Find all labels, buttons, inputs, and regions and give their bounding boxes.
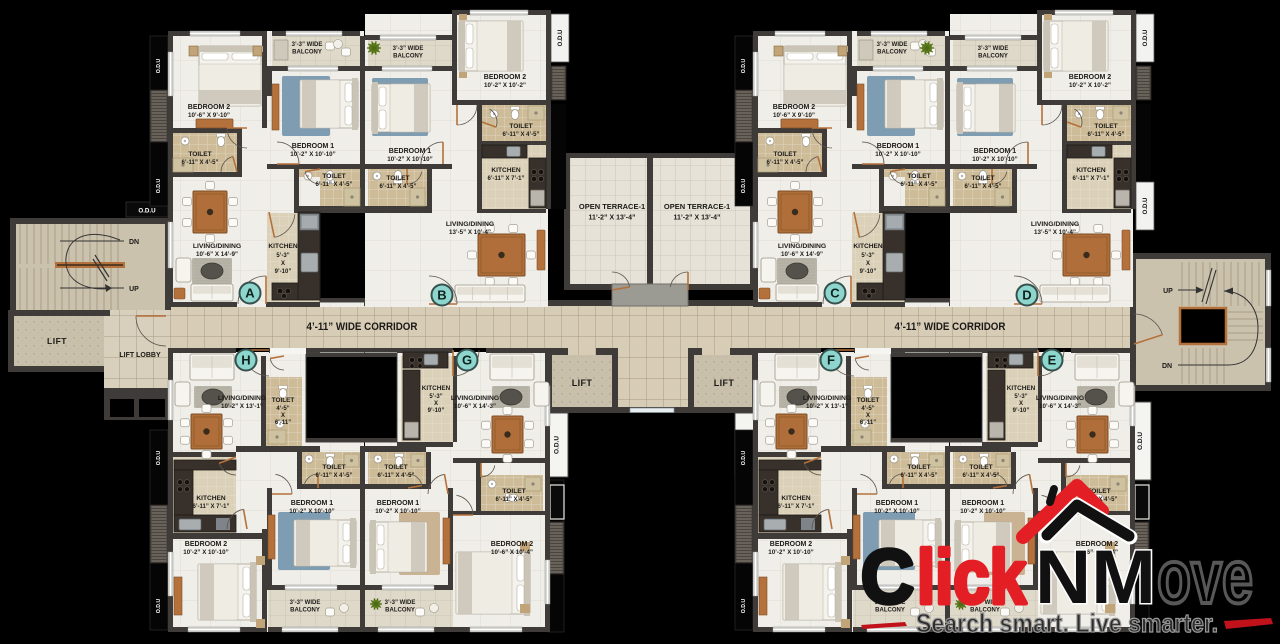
svg-text:TOILET: TOILET xyxy=(272,397,295,404)
svg-text:10’-6” X 14’-9”: 10’-6” X 14’-9” xyxy=(196,251,238,258)
svg-text:TOILET: TOILET xyxy=(322,464,345,471)
svg-text:TOILET: TOILET xyxy=(386,175,409,182)
svg-text:TOILET: TOILET xyxy=(509,123,532,130)
svg-text:9’-10”: 9’-10” xyxy=(275,269,292,275)
svg-text:LIFT LOBBY: LIFT LOBBY xyxy=(119,352,161,359)
svg-text:10’-2” X 10’-10”: 10’-2” X 10’-10” xyxy=(183,549,228,556)
svg-text:TOILET: TOILET xyxy=(188,151,211,158)
svg-text:UP: UP xyxy=(1163,288,1173,295)
svg-text:KITCHEN: KITCHEN xyxy=(853,243,883,250)
svg-text:X: X xyxy=(866,413,870,419)
svg-text:C: C xyxy=(830,286,840,301)
svg-text:10’-2” X 13’-1”: 10’-2” X 13’-1” xyxy=(221,403,263,410)
svg-text:10’-6” X 14’-3”: 10’-6” X 14’-3” xyxy=(454,403,496,410)
svg-text:4’-11” WIDE CORRIDOR: 4’-11” WIDE CORRIDOR xyxy=(895,321,1006,333)
svg-text:10’-2” X 10’-10”: 10’-2” X 10’-10” xyxy=(290,151,335,158)
svg-text:10’-6” X 9’-10”: 10’-6” X 9’-10” xyxy=(773,112,815,119)
svg-text:LIVING/DINING: LIVING/DINING xyxy=(778,243,826,250)
svg-text:O.D.U: O.D.U xyxy=(741,451,747,466)
svg-text:4’-5”: 4’-5” xyxy=(861,406,874,412)
svg-text:O.D.U: O.D.U xyxy=(156,59,162,74)
svg-text:5’-3”: 5’-3” xyxy=(276,253,289,259)
svg-text:6’-11” X 7’-1”: 6’-11” X 7’-1” xyxy=(192,504,229,510)
svg-text:O.D.U: O.D.U xyxy=(1137,432,1144,450)
svg-text:O.D.U: O.D.U xyxy=(741,59,747,74)
svg-text:OPEN TERRACE-1: OPEN TERRACE-1 xyxy=(579,202,645,211)
svg-text:BEDROOM 2: BEDROOM 2 xyxy=(1069,74,1112,81)
svg-text:6’-11” X 4’-5”: 6’-11” X 4’-5” xyxy=(900,473,937,479)
svg-text:X: X xyxy=(866,261,870,267)
svg-text:KITCHEN: KITCHEN xyxy=(491,167,521,174)
svg-text:10’-6” X 10’-4”: 10’-6” X 10’-4” xyxy=(491,549,533,556)
svg-text:TOILET: TOILET xyxy=(907,464,930,471)
svg-text:G: G xyxy=(462,353,472,368)
svg-text:6’-11” X 4’-5”: 6’-11” X 4’-5” xyxy=(315,473,352,479)
svg-text:13’-5” X 10’-4”: 13’-5” X 10’-4” xyxy=(1034,229,1076,236)
svg-text:LIVING/DINING: LIVING/DINING xyxy=(1031,221,1079,228)
svg-text:BALCONY: BALCONY xyxy=(393,54,423,60)
svg-text:4’-5”: 4’-5” xyxy=(276,406,289,412)
svg-text:O.D.U: O.D.U xyxy=(156,599,162,614)
svg-text:5’-3”: 5’-3” xyxy=(429,394,442,400)
svg-text:TOILET: TOILET xyxy=(502,488,525,495)
svg-text:11’-2” X 13’-4”: 11’-2” X 13’-4” xyxy=(588,215,635,222)
svg-text:BEDROOM 2: BEDROOM 2 xyxy=(770,541,813,548)
svg-text:BEDROOM 1: BEDROOM 1 xyxy=(292,143,335,150)
svg-text:5’-3”: 5’-3” xyxy=(1014,394,1027,400)
svg-text:10’-2” X 10’-2”: 10’-2” X 10’-2” xyxy=(1069,82,1111,89)
svg-text:3’-3” WIDE: 3’-3” WIDE xyxy=(393,46,424,52)
svg-text:9’-10”: 9’-10” xyxy=(428,408,445,414)
svg-text:BALCONY: BALCONY xyxy=(290,608,320,614)
svg-text:KITCHEN: KITCHEN xyxy=(1007,385,1036,392)
svg-text:10’-6” X 14’-9”: 10’-6” X 14’-9” xyxy=(781,251,823,258)
svg-text:9’-10”: 9’-10” xyxy=(860,269,877,275)
svg-text:6’-11” X 7’-1”: 6’-11” X 7’-1” xyxy=(487,176,524,182)
svg-text:3’-3” WIDE: 3’-3” WIDE xyxy=(292,42,323,48)
svg-text:BEDROOM 1: BEDROOM 1 xyxy=(962,500,1005,507)
svg-text:TOILET: TOILET xyxy=(857,397,880,404)
svg-text:10’-2” X 10’-2”: 10’-2” X 10’-2” xyxy=(484,82,526,89)
svg-text:BEDROOM 1: BEDROOM 1 xyxy=(876,500,919,507)
svg-text:6’-11” X 4’-5”: 6’-11” X 4’-5” xyxy=(379,184,416,190)
svg-text:6’-11” X 7’-1”: 6’-11” X 7’-1” xyxy=(1072,176,1109,182)
svg-text:X: X xyxy=(281,413,285,419)
svg-text:O.D.U: O.D.U xyxy=(138,208,156,215)
svg-text:KITCHEN: KITCHEN xyxy=(268,243,298,250)
svg-text:3’-3” WIDE: 3’-3” WIDE xyxy=(877,42,908,48)
svg-text:10’-2” X 10’-10”: 10’-2” X 10’-10” xyxy=(387,156,432,163)
svg-text:6’-11” X 4’-5”: 6’-11” X 4’-5” xyxy=(964,184,1001,190)
svg-text:X: X xyxy=(1019,401,1023,407)
svg-text:KITCHEN: KITCHEN xyxy=(196,495,226,502)
svg-text:LIVING/DINING: LIVING/DINING xyxy=(451,395,499,402)
svg-text:UP: UP xyxy=(129,286,139,293)
svg-text:F: F xyxy=(827,353,835,368)
svg-text:X: X xyxy=(281,261,285,267)
svg-text:O.D.U: O.D.U xyxy=(741,599,747,614)
svg-text:O.D.U: O.D.U xyxy=(554,436,561,454)
svg-text:KITCHEN: KITCHEN xyxy=(422,385,451,392)
svg-text:10’-2” X 10’-10”: 10’-2” X 10’-10” xyxy=(875,151,920,158)
svg-text:X: X xyxy=(434,401,438,407)
svg-text:BALCONY: BALCONY xyxy=(877,50,907,56)
svg-text:KITCHEN: KITCHEN xyxy=(781,495,811,502)
svg-text:E: E xyxy=(1048,353,1057,368)
svg-text:6’-11” X 4’-5”: 6’-11” X 4’-5” xyxy=(377,473,414,479)
svg-text:A: A xyxy=(245,286,255,301)
svg-text:C: C xyxy=(861,535,914,620)
svg-text:TOILET: TOILET xyxy=(384,464,407,471)
svg-text:BEDROOM 1: BEDROOM 1 xyxy=(377,500,420,507)
svg-text:LIFT: LIFT xyxy=(572,378,593,388)
svg-text:10’-6” X 14’-3”: 10’-6” X 14’-3” xyxy=(1039,403,1081,410)
svg-text:4’-11” WIDE CORRIDOR: 4’-11” WIDE CORRIDOR xyxy=(307,321,418,333)
svg-text:BEDROOM 2: BEDROOM 2 xyxy=(484,74,527,81)
svg-text:O.D.U: O.D.U xyxy=(156,179,162,194)
svg-text:DN: DN xyxy=(129,239,139,246)
svg-text:6’-11” X 4’-5”: 6’-11” X 4’-5” xyxy=(900,182,937,188)
svg-text:BEDROOM 1: BEDROOM 1 xyxy=(389,148,432,155)
svg-text:TOILET: TOILET xyxy=(971,175,994,182)
svg-text:D: D xyxy=(1022,288,1031,303)
svg-text:10’-2” X 10’-10”: 10’-2” X 10’-10” xyxy=(972,156,1017,163)
svg-text:LIVING/DINING: LIVING/DINING xyxy=(193,243,241,250)
svg-text:10’-2” X 10’-10”: 10’-2” X 10’-10” xyxy=(768,549,813,556)
svg-text:B: B xyxy=(437,288,446,303)
svg-text:BALCONY: BALCONY xyxy=(292,50,322,56)
svg-text:TOILET: TOILET xyxy=(322,173,345,180)
svg-text:O.D.U: O.D.U xyxy=(558,30,564,47)
svg-text:O.D.U: O.D.U xyxy=(1143,198,1149,215)
svg-text:O.D.U: O.D.U xyxy=(741,179,747,194)
svg-text:11’-2” X 13’-4”: 11’-2” X 13’-4” xyxy=(673,215,720,222)
svg-text:BEDROOM 1: BEDROOM 1 xyxy=(291,500,334,507)
svg-text:9’-10”: 9’-10” xyxy=(1013,408,1030,414)
svg-text:LIFT: LIFT xyxy=(47,336,67,346)
svg-text:BEDROOM 2: BEDROOM 2 xyxy=(773,104,816,111)
svg-text:10’-2” X 10’-10”: 10’-2” X 10’-10” xyxy=(375,508,420,515)
svg-text:TOILET: TOILET xyxy=(773,151,796,158)
svg-text:6’-11” X 4’-5”: 6’-11” X 4’-5” xyxy=(495,497,532,503)
svg-text:10’-6” X 9’-10”: 10’-6” X 9’-10” xyxy=(188,112,230,119)
svg-text:BEDROOM 2: BEDROOM 2 xyxy=(188,104,231,111)
svg-text:BALCONY: BALCONY xyxy=(385,608,415,614)
svg-text:6’-11”: 6’-11” xyxy=(275,420,291,426)
svg-text:BEDROOM 1: BEDROOM 1 xyxy=(877,143,920,150)
svg-text:TOILET: TOILET xyxy=(1094,123,1117,130)
svg-text:LIVING/DINING: LIVING/DINING xyxy=(803,395,851,402)
svg-text:10’-2” X 10’-10”: 10’-2” X 10’-10” xyxy=(874,508,919,515)
svg-text:H: H xyxy=(241,353,250,368)
svg-text:TOILET: TOILET xyxy=(907,173,930,180)
svg-text:Search smart. Live smarter.: Search smart. Live smarter. xyxy=(916,608,1218,638)
svg-text:10’-2” X 13’-1”: 10’-2” X 13’-1” xyxy=(806,403,848,410)
svg-text:10’-2” X 10’-10”: 10’-2” X 10’-10” xyxy=(960,508,1005,515)
svg-text:13’-5” X 10’-4”: 13’-5” X 10’-4” xyxy=(449,229,491,236)
svg-text:3’-3” WIDE: 3’-3” WIDE xyxy=(978,46,1009,52)
svg-text:LIVING/DINING: LIVING/DINING xyxy=(218,395,266,402)
svg-text:6’-11” X 4’-5”: 6’-11” X 4’-5” xyxy=(315,182,352,188)
svg-text:LIVING/DINING: LIVING/DINING xyxy=(446,221,494,228)
svg-text:3’-3” WIDE: 3’-3” WIDE xyxy=(290,600,321,606)
svg-text:6’-11” X 7’-1”: 6’-11” X 7’-1” xyxy=(777,504,814,510)
svg-text:BEDROOM 1: BEDROOM 1 xyxy=(974,148,1017,155)
svg-text:3’-3” WIDE: 3’-3” WIDE xyxy=(385,600,416,606)
svg-text:BALCONY: BALCONY xyxy=(978,54,1008,60)
svg-text:O.D.U: O.D.U xyxy=(156,451,162,466)
svg-text:5’-3”: 5’-3” xyxy=(861,253,874,259)
svg-text:BEDROOM 2: BEDROOM 2 xyxy=(491,541,534,548)
svg-text:6’-11” X 4’-5”: 6’-11” X 4’-5” xyxy=(1087,132,1124,138)
svg-text:6’-11” X 4’-5”: 6’-11” X 4’-5” xyxy=(502,132,539,138)
svg-text:BEDROOM 2: BEDROOM 2 xyxy=(185,541,228,548)
svg-text:DN: DN xyxy=(1162,363,1172,370)
svg-text:O.D.U: O.D.U xyxy=(1143,30,1149,47)
svg-text:10’-2” X 10’-10”: 10’-2” X 10’-10” xyxy=(289,508,334,515)
svg-text:LIFT: LIFT xyxy=(714,378,735,388)
svg-text:OPEN TERRACE-1: OPEN TERRACE-1 xyxy=(664,202,730,211)
svg-text:TOILET: TOILET xyxy=(969,464,992,471)
svg-text:6’-11” X 4’-5”: 6’-11” X 4’-5” xyxy=(962,473,999,479)
svg-text:6’-11” X 4’-5”: 6’-11” X 4’-5” xyxy=(766,160,803,166)
svg-text:6’-11”: 6’-11” xyxy=(860,420,876,426)
svg-text:KITCHEN: KITCHEN xyxy=(1076,167,1106,174)
svg-text:LIVING/DINING: LIVING/DINING xyxy=(1036,395,1084,402)
svg-text:6’-11” X 4’-5”: 6’-11” X 4’-5” xyxy=(181,160,218,166)
